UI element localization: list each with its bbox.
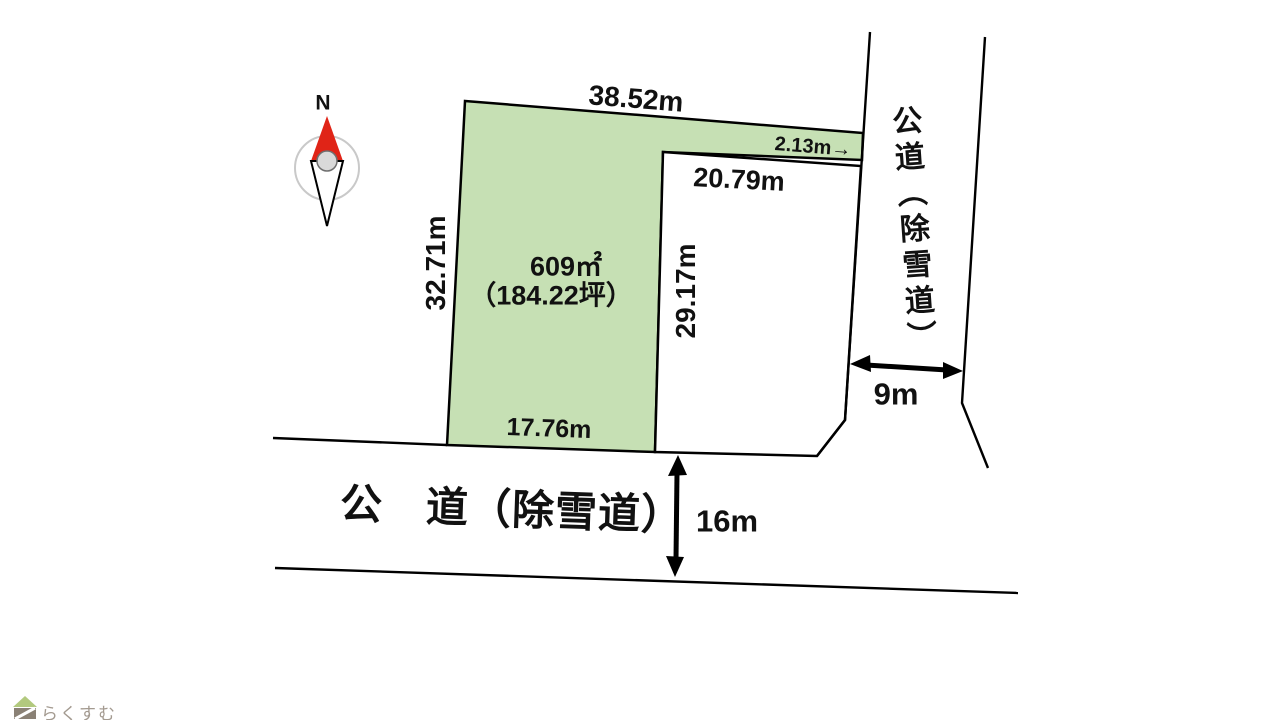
dimension-label-top: 38.52m: [588, 81, 685, 116]
land-plot-diagram: 38.52m 32.71m 609㎡ （184.22坪） 29.17m 20.7…: [0, 0, 1280, 720]
compass-north-label: N: [315, 93, 330, 114]
road-bottom-width-label: 16m: [696, 506, 758, 537]
plot-area-sqm-label: 609㎡: [530, 254, 602, 281]
compass: [295, 116, 359, 226]
right-arrow-icon: →: [830, 137, 852, 161]
dimension-label-bottom: 17.76m: [506, 415, 592, 443]
road-right-right-edge: [962, 37, 988, 468]
road-bottom-lower-edge: [275, 568, 1018, 593]
road-right-width-arrow: [850, 355, 963, 379]
road-right-width-label: 9m: [874, 379, 919, 410]
dimension-label-neighbor-top: 20.79m: [693, 164, 786, 196]
dimension-label-left: 32.71m: [422, 216, 450, 311]
compass-center-dot: [317, 151, 337, 171]
plot-area-tsubo-label: （184.22坪）: [469, 283, 633, 310]
logo-house-icon: [13, 696, 37, 719]
dimension-label-right-inner: 29.17m: [672, 244, 700, 339]
road-bottom-upper-edge: [273, 438, 447, 445]
logo-text: らくすむ: [41, 700, 117, 720]
